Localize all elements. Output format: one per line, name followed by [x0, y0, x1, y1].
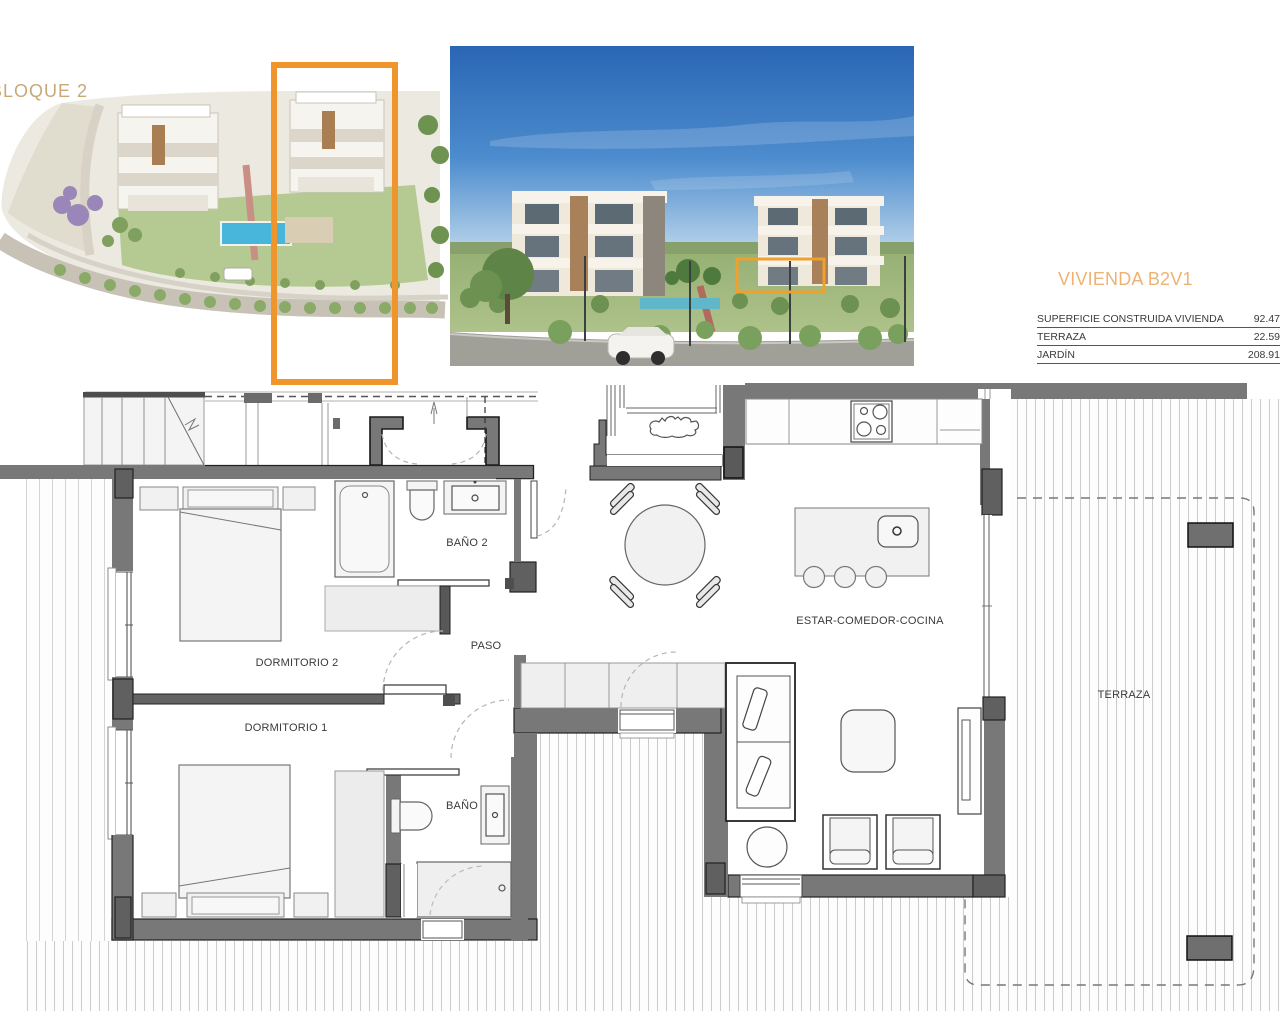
svg-text:DORMITORIO 1: DORMITORIO 1 [245, 722, 328, 734]
svg-text:BAÑO: BAÑO [446, 799, 478, 812]
svg-text:DORMITORIO 2: DORMITORIO 2 [256, 657, 339, 669]
svg-text:BAÑO 2: BAÑO 2 [446, 536, 488, 549]
svg-text:PASO: PASO [471, 640, 502, 652]
svg-text:ESTAR-COMEDOR-COCINA: ESTAR-COMEDOR-COCINA [796, 615, 944, 627]
svg-text:TERRAZA: TERRAZA [1098, 689, 1151, 701]
